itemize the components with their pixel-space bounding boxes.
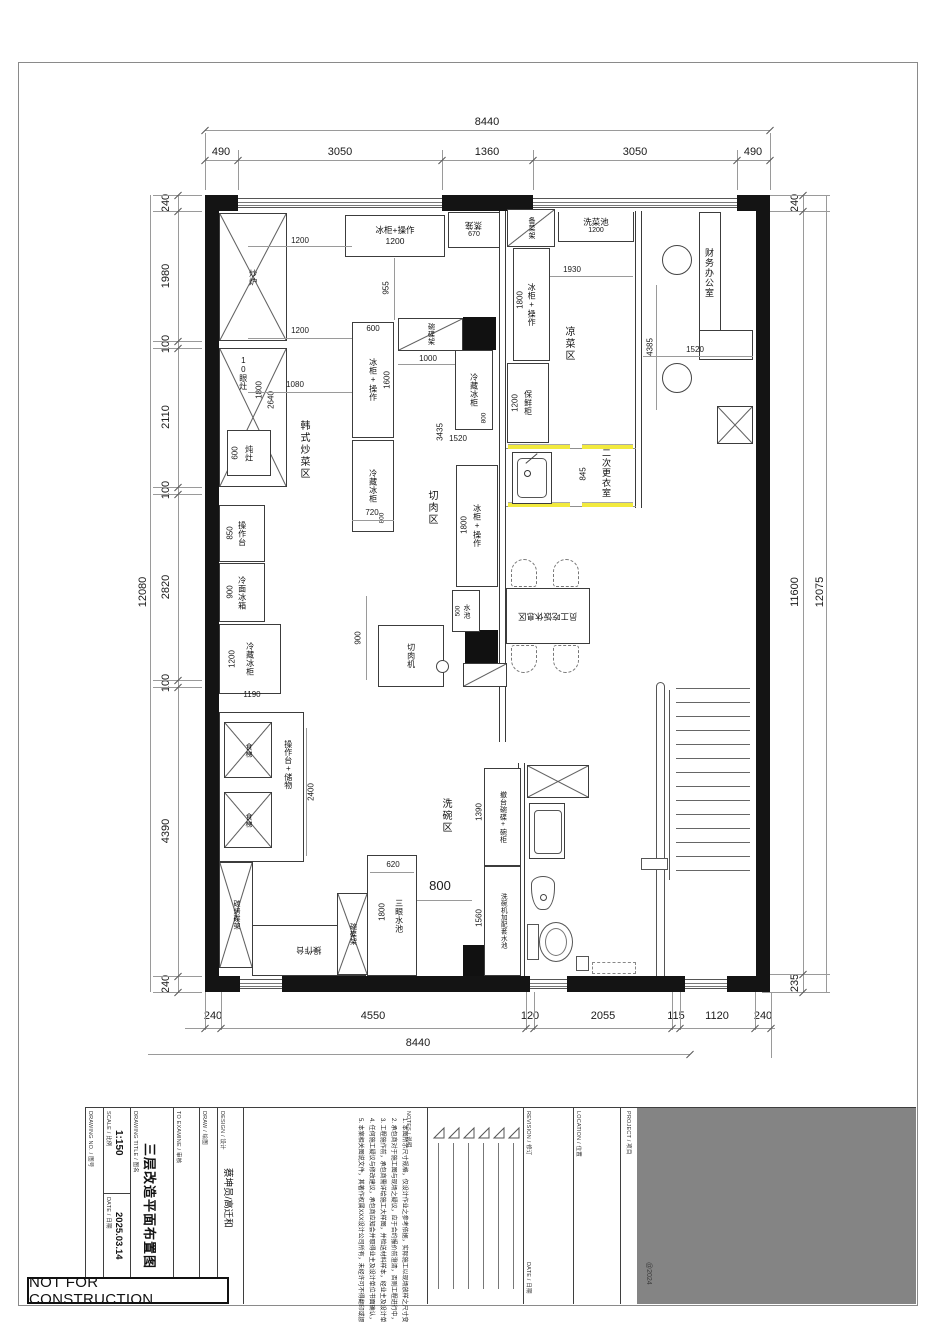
ext-line [534, 992, 535, 1030]
fixture-label: 冷藏冰柜 [245, 642, 254, 676]
dim: 1000 [419, 354, 437, 363]
note-item: 1. 本图所示尺寸规格，仅设计作业之参考依据，实际施工以现场放样之尺寸变化为准。 [399, 1118, 408, 1296]
dim-line [643, 356, 753, 357]
titleblock-divider [243, 1107, 244, 1304]
dim: 670 [468, 231, 480, 240]
revision-row-line [483, 1143, 484, 1289]
sink-drain [524, 470, 531, 477]
fixture-label: 碗碟架 [426, 323, 434, 346]
dim: 845 [579, 467, 588, 480]
wall-bottom-2 [282, 976, 530, 992]
sink-basin [517, 458, 547, 498]
column [463, 317, 496, 350]
dim: 4385 [646, 338, 655, 356]
dim: 1800 [378, 903, 387, 921]
ext-line [526, 992, 527, 1030]
titleblock-divider [427, 1107, 428, 1304]
dim-line [366, 596, 367, 680]
titleblock-split [103, 1193, 130, 1194]
dim-left-seg: 100 [160, 674, 172, 692]
dim-top-seg: 490 [212, 146, 230, 158]
scale-label: SCALE / 比例 [105, 1111, 113, 1147]
dim: 1520 [449, 434, 467, 443]
revision-triangle-icon [462, 1126, 476, 1140]
window-bottom-1 [240, 979, 282, 989]
fixture-label: 冷藏冰柜 [469, 373, 478, 407]
dim-left-seg: 240 [160, 975, 172, 993]
dim-left-seg: 2820 [160, 575, 172, 599]
fixture-label: 操作台 [237, 521, 246, 547]
dim-left-seg: 4390 [160, 819, 172, 843]
dim: 3435 [436, 423, 445, 441]
fixture-label: 冰柜+操作 [368, 358, 377, 402]
date-value: 2025.03.14 [113, 1212, 124, 1260]
fixture-dish-rack-top: 碗碟架 [398, 318, 463, 351]
dim: 720 [365, 508, 378, 517]
fixture-charcoal-dish-rack: 碳烤碟架 [219, 862, 253, 968]
dim-bottom-overall: 8440 [406, 1037, 430, 1049]
revision-row-line [498, 1143, 499, 1289]
dim-line [248, 246, 352, 247]
fixture-label: 食梯 [244, 743, 252, 758]
fixture-label: 操作台 [296, 945, 322, 956]
fixture-label: 切肉机 [406, 643, 415, 669]
fixture-label: 三眼水池 [394, 899, 403, 933]
chair-icon [553, 645, 579, 673]
dim: 1200 [291, 236, 309, 245]
dashed-duct [592, 962, 636, 974]
design-label: DESIGN / 设计 [219, 1111, 227, 1150]
fixture-label: 食梯 [244, 813, 252, 828]
dim-line [148, 1054, 690, 1055]
zone-label-korean-stirfry: 韩式炒菜区 [296, 420, 311, 480]
fixture-label: 冰柜+操作 [527, 283, 536, 327]
dim: 1200 [291, 326, 309, 335]
fixture-meat-cutter: 切肉机 [378, 625, 444, 687]
ext-line [442, 150, 443, 190]
dim: 500 [455, 606, 462, 617]
note-item: 3. 工程施作前，承包商需详绘施工大样图，并检送材料样本，经业主及设计单位确认后… [377, 1118, 386, 1296]
dim: 1800 [460, 516, 469, 534]
wall-right [756, 195, 770, 992]
fixture-label: 冰柜+操作 [376, 225, 415, 236]
revision-triangle-icon [492, 1126, 506, 1140]
dim: 955 [382, 281, 391, 294]
ext-line [238, 150, 239, 190]
revision-row-line [468, 1143, 469, 1289]
revision-triangle-icon [432, 1126, 446, 1140]
note-item: 5. 本案相关图说文件，其著作权属XXX设计公司所有，未经许可不得翻印或挪为其他… [355, 1118, 364, 1296]
dim-bottom-seg: 4550 [361, 1010, 385, 1022]
dim: 600 [231, 446, 240, 459]
fixture-dish-rack-bottom: 碗碟架 [337, 893, 368, 975]
dim: 1200 [386, 236, 405, 247]
dim: 1080 [286, 380, 304, 389]
zone-label-staff-dining: 员工吃饭休息区 [518, 611, 578, 622]
ext-line [770, 133, 771, 190]
toilet-bowl-inner [545, 928, 567, 956]
dim-right-overall: 12075 [814, 577, 826, 608]
dim-bottom-seg: 2055 [591, 1010, 615, 1022]
revision-triangle-icon [507, 1126, 521, 1140]
note-item: 2. 承包商对于施工图与现场之疑议，应于合约报价前澄清，否则工程进行中，一切依设… [388, 1118, 397, 1296]
ext-line [755, 992, 756, 1030]
dim-top-seg: 3050 [328, 146, 352, 158]
dim-line [656, 285, 657, 410]
urinal-icon [531, 876, 555, 910]
fixture-label: 洗碗机加配套水池 [499, 893, 506, 949]
wall-bottom-4 [727, 976, 770, 992]
toilet-tank [527, 924, 539, 960]
dim-line [248, 338, 352, 339]
fixture-label: 炖灶 [244, 445, 253, 462]
dim: 1560 [475, 909, 484, 927]
fixture-counter-diag [463, 663, 507, 687]
revision-row-line [438, 1143, 439, 1289]
dim: 600 [366, 324, 379, 333]
dim: 2640 [267, 391, 276, 409]
dim: 2400 [307, 783, 316, 801]
dim-line [370, 872, 414, 873]
dim: 1800 [516, 291, 525, 309]
dim-top-seg: 490 [744, 146, 762, 158]
fixture-label: 撤台碗碟+碗柜 [498, 791, 506, 844]
dim-right-seg: 240 [789, 194, 801, 212]
zone-label-cold-dish: 凉菜区 [561, 326, 576, 362]
stool-icon [662, 363, 692, 393]
ext-line [221, 992, 222, 1030]
fixture-label: 冰柜+操作 [472, 504, 481, 548]
ext-line [762, 195, 830, 196]
dim-line [150, 195, 151, 992]
dim-bottom-seg: 120 [521, 1010, 539, 1022]
ext-line [205, 992, 206, 1030]
dim-line [410, 900, 472, 901]
fixture-label: 备菜架 [527, 217, 535, 240]
fixture-label: 冷面冰箱 [237, 576, 246, 610]
date-label: DATE / 日期 [105, 1197, 113, 1229]
fixture-veg-washing-sink: 洗菜池 1200 [558, 212, 634, 242]
fixture-label: 炒炉 [248, 269, 257, 286]
dim-right-seg: 11600 [789, 577, 801, 607]
dim-line [178, 195, 179, 992]
dim: 900 [226, 585, 235, 598]
stairs-steps [676, 688, 750, 880]
fixture-dishwasher-sink: 洗碗机加配套水池 [484, 866, 521, 976]
dim: 1190 [243, 690, 260, 699]
notes-text: 1. 本图所示尺寸规格，仅设计作业之参考依据，实际施工以现场放样之尺寸变化为准。… [258, 1118, 408, 1296]
note-item: 4. 任何施工疑议与修改建议，承包商应知会并取得业主及设计单位书面确认，作为修改… [366, 1118, 375, 1296]
dim: 1600 [383, 371, 392, 389]
urinal-drain [540, 894, 547, 901]
ext-line [762, 211, 830, 212]
dim-left-seg: 100 [160, 335, 172, 353]
dim-line [352, 520, 394, 521]
dim: 800 [481, 413, 488, 424]
zone-label-changing-room: 二次更衣室 [600, 448, 613, 498]
fixture-three-bowl-sink: 三眼水池 [367, 855, 417, 976]
fixture-label: 10眼灶 [238, 356, 247, 390]
fixture-label: 保鲜柜 [523, 390, 532, 416]
ext-line [762, 992, 830, 993]
drawing-no-label: DRAWING NO. / 图号 [87, 1111, 95, 1167]
dim-top-seg: 1360 [475, 146, 499, 158]
stairs-rail [656, 682, 665, 976]
dining-table: 员工吃饭休息区 [506, 588, 590, 644]
wall-left [205, 195, 219, 992]
dim-top-seg: 3050 [623, 146, 647, 158]
project-label: PROJECT / 项目 [625, 1111, 633, 1155]
dim-left-seg: 1980 [160, 264, 172, 288]
fixture-steamer: 蒸笼 670 [448, 212, 500, 248]
zone-label-meat-cutting: 切肉区 [424, 490, 439, 526]
wall-bottom-1 [205, 976, 240, 992]
not-for-construction-stamp: NOT FOR CONSTRUCTION [27, 1277, 229, 1304]
door-highlight [582, 502, 633, 507]
dim-line [205, 160, 770, 161]
dim: 850 [226, 526, 235, 539]
window-top-right [533, 198, 737, 208]
dim: 1200 [588, 227, 604, 236]
dim-bottom-seg: 240 [204, 1010, 222, 1022]
dim-top-overall: 8440 [475, 116, 499, 128]
fixture-label: 水池 [462, 604, 470, 619]
revision-row-line [453, 1143, 454, 1289]
dim-bottom-seg: 115 [667, 1010, 685, 1022]
titleblock-divider [573, 1107, 574, 1304]
wall-bottom-3 [567, 976, 685, 992]
dim: 1390 [475, 803, 484, 821]
partition-office [635, 211, 642, 508]
ext-line [737, 150, 738, 190]
dim: 1800 [255, 381, 264, 399]
stool-icon [436, 660, 449, 673]
dim: 1520 [686, 345, 704, 354]
zone-label-dishwashing: 洗碗区 [438, 798, 453, 834]
fixture-label: 冷藏冰柜 [368, 469, 377, 503]
ext-line [672, 992, 673, 1030]
stairs-rail-inner [669, 690, 670, 880]
stool-icon [662, 245, 692, 275]
dim-line [826, 195, 827, 992]
project-block [637, 1108, 916, 1304]
window-top-left [238, 198, 442, 208]
dim: 800 [429, 878, 451, 893]
revision-row-line [513, 1143, 514, 1289]
fixture-dumbwaiter: 食梯 [224, 792, 272, 848]
dim-line [803, 195, 804, 992]
revision-label: REVISION / 修订 [525, 1111, 533, 1155]
fixture-label: 蒸笼 [465, 220, 482, 231]
fixture-label: 碗碟架 [348, 923, 356, 946]
dim-bottom-seg: 240 [754, 1010, 772, 1022]
fixture-dumbwaiter: 食梯 [224, 722, 272, 778]
ext-line [533, 150, 534, 190]
fixture-cold-storage-800: 冷藏冰柜 [352, 440, 394, 532]
door-highlight [508, 444, 570, 449]
stamp-text: NOT FOR CONSTRUCTION [29, 1274, 227, 1308]
revision-date-label: DATE / 日期 [525, 1262, 533, 1294]
fixture-prep-rack: 备菜架 [507, 209, 555, 247]
floor-drain [576, 956, 589, 971]
window-bottom-3 [685, 979, 727, 989]
drawing-title: 三层改造平面布置图 [141, 1143, 160, 1269]
dim-line [394, 258, 395, 320]
examine-label: TO EXAMINE / 审核 [175, 1111, 183, 1163]
ext-line [680, 992, 681, 1030]
dim: 900 [354, 631, 363, 644]
washbasin-bowl [534, 810, 562, 854]
dim-line [398, 364, 463, 365]
window-bottom-2 [530, 979, 567, 989]
chair-icon [553, 559, 579, 587]
fixture-label: 操作台+储物 [283, 740, 292, 789]
chair-icon [511, 645, 537, 673]
drawing-title-label: DRAWING TITLE / 图名 [132, 1111, 140, 1173]
titleblock-divider [523, 1107, 524, 1304]
stairs-bracket [641, 858, 668, 870]
office-shaft [717, 406, 753, 444]
fixture-bussing-cabinet: 撤台碗碟+碗柜 [484, 768, 521, 866]
fixture-stirfry-stove: 炒炉 [219, 213, 287, 341]
dim: 1930 [563, 265, 581, 274]
dim-line [185, 1028, 775, 1029]
designers: 蔡坤员/高迁和 [222, 1168, 236, 1228]
revision-triangle-icon [447, 1126, 461, 1140]
dim: 620 [386, 860, 399, 869]
ext-line [205, 133, 206, 190]
fixture-freezer-worktop: 冰柜+操作 1200 [345, 215, 445, 257]
column [465, 630, 498, 663]
dim-left-seg: 2110 [160, 405, 172, 429]
dim-line [205, 130, 770, 131]
ext-line [762, 974, 830, 975]
location-label: LOCATION / 位置 [575, 1111, 583, 1157]
fixture-label: 碳烤碟架 [232, 900, 240, 930]
chair-icon [511, 559, 537, 587]
drawing-sheet: 8440 490 3050 1360 3050 490 12080 240 19… [0, 0, 935, 1322]
titleblock-divider [620, 1107, 621, 1304]
revision-triangle-icon [477, 1126, 491, 1140]
dim-left-seg: 100 [160, 481, 172, 499]
dim: 1200 [511, 394, 520, 412]
dim-bottom-seg: 1120 [705, 1010, 729, 1022]
dim-left-overall: 12080 [137, 577, 149, 608]
zone-label-finance-office: 财务办公室 [703, 248, 716, 298]
draw-label: DRAW / 绘图 [201, 1111, 209, 1145]
dim: 800 [379, 513, 386, 524]
toilet-shaft [527, 765, 589, 798]
dim: 1200 [228, 650, 237, 668]
fixture-label: 洗菜池 [583, 217, 609, 228]
dim-left-seg: 240 [160, 194, 172, 212]
scale-value: 1:150 [113, 1130, 124, 1156]
copyright: @2024 [645, 1262, 652, 1285]
